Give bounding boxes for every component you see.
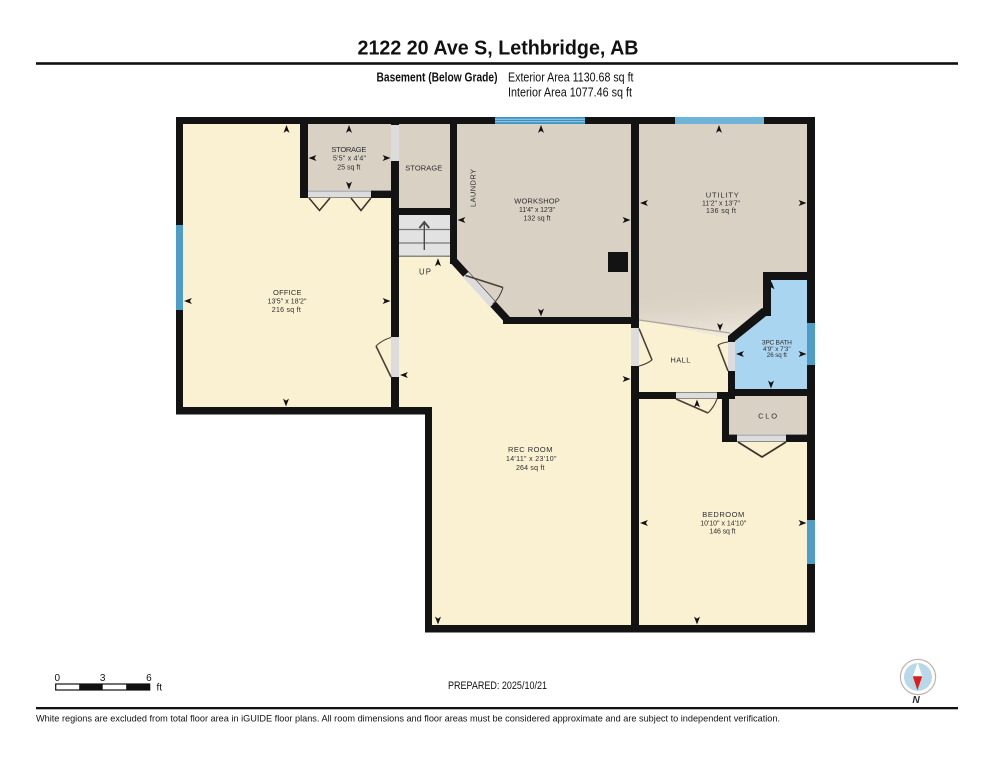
svg-text:3: 3 (100, 673, 106, 684)
svg-text:ft: ft (157, 683, 163, 694)
svg-text:UTILITY: UTILITY (706, 191, 739, 200)
svg-text:UP: UP (419, 268, 431, 277)
svg-text:26 sq ft: 26 sq ft (767, 352, 787, 359)
svg-text:Basement (Below Grade): Basement (Below Grade) (377, 70, 498, 84)
svg-text:14'11" x 23'10": 14'11" x 23'10" (506, 456, 557, 463)
svg-text:PREPARED: 2025/10/21: PREPARED: 2025/10/21 (448, 680, 547, 692)
svg-text:2122 20 Ave S, Lethbridge, AB: 2122 20 Ave S, Lethbridge, AB (358, 38, 639, 60)
svg-text:132 sq ft: 132 sq ft (524, 216, 551, 223)
svg-text:146 sq ft: 146 sq ft (709, 529, 735, 536)
svg-text:13'5" x 18'2": 13'5" x 18'2" (268, 299, 308, 306)
svg-text:6: 6 (146, 673, 152, 684)
svg-text:10'10" x 14'10": 10'10" x 14'10" (700, 521, 747, 528)
svg-text:REC ROOM: REC ROOM (508, 445, 553, 454)
svg-text:N: N (912, 695, 920, 706)
svg-text:11'4" x 12'3": 11'4" x 12'3" (519, 207, 556, 214)
svg-text:5'5" x 4'4": 5'5" x 4'4" (333, 156, 367, 163)
svg-text:11'2" x 13'7": 11'2" x 13'7" (702, 201, 741, 208)
svg-text:White regions are excluded fro: White regions are excluded from total fl… (36, 713, 780, 723)
svg-text:CLO: CLO (758, 411, 777, 420)
svg-text:STORAGE: STORAGE (405, 164, 442, 173)
svg-text:LAUNDRY: LAUNDRY (469, 169, 478, 207)
svg-text:HALL: HALL (670, 356, 690, 365)
svg-text:BEDROOM: BEDROOM (702, 510, 744, 519)
svg-text:25 sq ft: 25 sq ft (337, 165, 360, 172)
svg-text:OFFICE: OFFICE (273, 288, 302, 297)
svg-text:136 sq ft: 136 sq ft (706, 208, 736, 215)
svg-text:Exterior Area 1130.68 sq ft: Exterior Area 1130.68 sq ft (508, 70, 634, 84)
svg-text:216 sq ft: 216 sq ft (272, 307, 301, 314)
svg-text:0: 0 (55, 673, 61, 684)
svg-text:STORAGE: STORAGE (331, 145, 366, 154)
svg-text:WORKSHOP: WORKSHOP (514, 197, 560, 206)
svg-text:264 sq ft: 264 sq ft (516, 465, 545, 472)
svg-text:Interior Area 1077.46 sq ft: Interior Area 1077.46 sq ft (508, 86, 632, 100)
